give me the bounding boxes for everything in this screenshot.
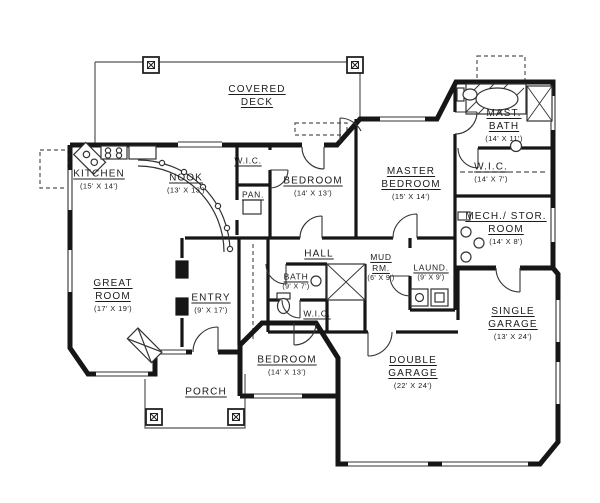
mud-garage-door	[368, 332, 392, 356]
toilet-icon	[457, 88, 477, 101]
entry-column	[177, 299, 187, 314]
entry-column	[177, 262, 187, 277]
shower-icon	[527, 86, 552, 121]
water-heater-icons	[458, 212, 484, 262]
fireplace-icon	[127, 328, 162, 363]
bedroom-top-hall-door	[300, 216, 322, 238]
covered-deck-outline	[95, 62, 360, 143]
walls-exterior	[70, 82, 558, 464]
bedroom-bottom-door	[294, 323, 316, 345]
floorplan-canvas: COVERED DECK KITCHEN (15' X 14') NOOK (1…	[0, 0, 600, 503]
post-icon	[228, 409, 244, 425]
mech-door	[496, 268, 520, 292]
bedroom-top-deck-door	[302, 147, 324, 169]
toilet-icon	[277, 293, 290, 314]
master-bath-door	[455, 112, 477, 134]
pantry-shelf	[243, 200, 261, 214]
walls-interior	[177, 82, 553, 352]
dryer-icon	[431, 289, 448, 306]
range-icon	[101, 146, 127, 159]
floorplan-drawing	[0, 0, 600, 503]
master-bedroom-door	[393, 214, 417, 238]
laundry-door	[390, 276, 410, 296]
washer-icon	[411, 289, 428, 306]
posts	[143, 57, 363, 425]
post-icon	[146, 409, 162, 425]
window-seat-dashed-box	[40, 150, 68, 188]
deck-dashed-box	[295, 123, 347, 135]
fridge-icon	[129, 146, 156, 159]
hall-chase-icon	[327, 264, 365, 300]
wic-top-door	[270, 170, 288, 188]
post-icon	[347, 57, 363, 73]
front-door	[193, 327, 218, 352]
post-icon	[143, 57, 159, 73]
wic-master-door	[458, 148, 478, 168]
sink-icon	[311, 276, 321, 286]
planter-dashed-box	[477, 56, 525, 82]
sink-icon	[511, 141, 522, 152]
